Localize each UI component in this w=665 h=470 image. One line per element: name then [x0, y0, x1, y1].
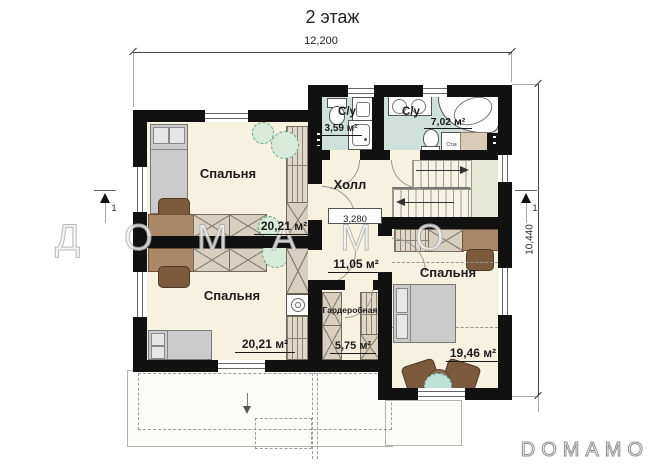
- room-area-bathroom-small: 3,59 м²: [320, 123, 362, 136]
- door-opening: [390, 150, 420, 160]
- extension-line: [538, 396, 539, 412]
- wall: [248, 110, 315, 122]
- section-arrow-icon: [521, 193, 531, 203]
- wall: [392, 388, 418, 400]
- wall: [498, 182, 512, 268]
- terrace-outline-right: [385, 400, 462, 446]
- wall: [378, 272, 392, 400]
- bathroom-counter: [460, 132, 489, 152]
- wall: [420, 150, 498, 160]
- wall: [265, 360, 378, 372]
- dimension-line-top: [133, 52, 512, 53]
- door-opening: [330, 150, 360, 160]
- stair-arrow-left-icon: [396, 198, 405, 206]
- double-bed: [393, 284, 456, 343]
- stair-arrow-right-icon: [460, 166, 469, 174]
- section-marker-label: 1: [529, 203, 541, 213]
- window: [498, 268, 512, 315]
- dimension-overall-width: 12,200: [281, 35, 361, 47]
- window: [205, 110, 248, 122]
- section-arrow-icon: [100, 193, 110, 203]
- page-title: 2 этаж: [0, 7, 665, 28]
- section-marker-bar: [94, 190, 116, 191]
- roof-slope-arrow-head-icon: [243, 406, 251, 414]
- bed: [148, 330, 212, 360]
- room-label-bedroom-right: Спальня: [408, 266, 488, 280]
- wall: [133, 360, 218, 372]
- wall: [360, 150, 390, 160]
- hall-dimension-box: 3,280: [328, 208, 382, 224]
- window: [348, 85, 374, 97]
- extension-line: [133, 53, 134, 107]
- window: [498, 155, 512, 182]
- section-marker-bar: [515, 190, 537, 191]
- room-area-wardrobe: 5,75 м²: [330, 340, 376, 354]
- room-label-hall: Холл: [322, 178, 378, 192]
- room-area-bedroom-bottom-left: 20,21 м²: [235, 338, 295, 353]
- room-area-hall: 11,05 м²: [328, 258, 384, 273]
- stair-landing: [470, 160, 498, 217]
- wall: [308, 150, 330, 160]
- extension-line: [511, 53, 512, 82]
- room-label-bedroom-top-left: Спальня: [175, 167, 281, 181]
- wall: [465, 388, 512, 400]
- room-area-bedroom-top-left: 20,21 м²: [254, 220, 314, 235]
- wall: [498, 85, 512, 155]
- window: [423, 85, 447, 97]
- room-label-wardrobe: Гардеробная: [319, 306, 381, 315]
- roof-slope-arrow: [247, 393, 248, 407]
- stair-flight-upper: [412, 160, 472, 189]
- window: [418, 388, 465, 400]
- room-label-bathroom-small: С/у: [330, 106, 364, 118]
- floor-plan-canvas: 2 этаж 12,200 10,440 1 1: [0, 0, 665, 470]
- door-opening: [345, 280, 373, 290]
- wall: [133, 110, 205, 122]
- window: [133, 272, 147, 317]
- stair-direction-line: [416, 170, 462, 171]
- stair-direction-line: [404, 202, 454, 203]
- room-label-bedroom-bottom-left: Спальня: [179, 289, 285, 303]
- washing-machine: Ст.м: [441, 132, 462, 152]
- dimension-overall-height: 10,440: [525, 214, 538, 266]
- equipment-unit: [286, 294, 310, 316]
- plant-icon: [271, 131, 299, 159]
- window: [133, 167, 147, 212]
- wall: [308, 280, 345, 290]
- section-marker-label: 1: [108, 203, 120, 213]
- dimension-line-right: [538, 84, 539, 396]
- window: [218, 360, 265, 372]
- washing-machine-label: Ст.м: [446, 142, 456, 148]
- brand-logo: DOMAMO: [521, 439, 649, 462]
- room-area-bathroom-large: 7,02 м²: [424, 116, 472, 129]
- room-area-bedroom-right: 19,46 м²: [446, 347, 500, 362]
- terrace-dashed-line: [312, 373, 318, 459]
- hall-dimension-value: 3,280: [343, 214, 367, 225]
- room-label-bathroom-large: С/у: [394, 106, 428, 118]
- stair-divider: [392, 187, 470, 189]
- desk-chair: [158, 266, 190, 288]
- ventilation-shaft: [487, 133, 498, 150]
- terrace-dashed-step: [255, 418, 312, 449]
- door-opening: [308, 184, 322, 220]
